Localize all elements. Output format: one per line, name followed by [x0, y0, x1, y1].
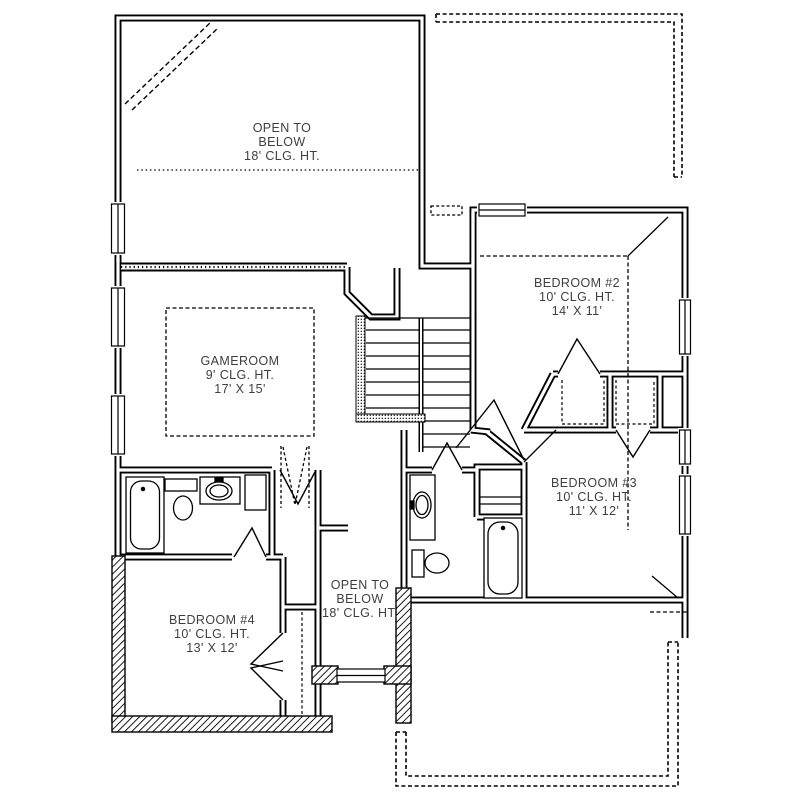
room-label-line: 9' CLG. HT. — [206, 368, 275, 382]
hatched-wall-right — [396, 588, 411, 723]
roof-line — [436, 22, 674, 177]
window — [110, 202, 126, 255]
room-label-line: 10' CLG. HT. — [556, 490, 632, 504]
room-label-line: BELOW — [336, 592, 383, 606]
floor-plan-page: OPEN TO BELOW 18' CLG. HT. GAMEROOM 9' C… — [0, 0, 800, 800]
room-label-line: 18' CLG. HT. — [244, 149, 320, 163]
bathtub-drain-icon — [141, 487, 144, 490]
stair-treads-right — [422, 330, 470, 447]
sink-basin-inner — [210, 485, 228, 497]
toilet-tank-icon — [412, 550, 424, 577]
roof-line — [396, 642, 678, 786]
linen-closet-shelves — [480, 497, 521, 504]
room-label-line: OPEN TO — [253, 121, 312, 135]
window — [678, 474, 692, 536]
room-label-line: 14' X 11' — [552, 304, 603, 318]
toilet-tank-icon — [165, 479, 197, 491]
window — [678, 428, 692, 466]
room-label-line: 17' X 15' — [214, 382, 265, 396]
faucet-icon — [410, 501, 414, 509]
room-label-bedroom-4: BEDROOM #4 10' CLG. HT. 13' X 12' — [169, 613, 255, 655]
faucet-icon — [215, 478, 223, 482]
room-label-gameroom: GAMEROOM 9' CLG. HT. 17' X 15' — [201, 354, 280, 396]
cabinet-icon — [245, 475, 266, 510]
floor-plan-drawing: OPEN TO BELOW 18' CLG. HT. GAMEROOM 9' C… — [0, 0, 800, 800]
bathtub-inner — [131, 481, 160, 549]
room-label-line: 10' CLG. HT. — [174, 627, 250, 641]
stair-railing — [356, 414, 425, 422]
sink-basin-inner — [416, 496, 428, 515]
toilet-bowl-icon — [425, 553, 449, 573]
hall-door — [280, 470, 316, 504]
window — [337, 669, 385, 682]
bathroom-left-fixtures — [126, 475, 266, 553]
room-label-line: BEDROOM #2 — [534, 276, 620, 290]
bathroom-right-fixtures — [410, 475, 522, 598]
bathtub-drain-icon — [501, 526, 504, 529]
room-label-line: 11' X 12' — [569, 504, 620, 518]
roof-outline-top-right — [436, 14, 682, 177]
french-doors — [251, 633, 283, 700]
roof-line — [406, 642, 668, 776]
bedroom2-tray-diagonal — [628, 217, 668, 256]
window — [110, 394, 126, 456]
roof-line — [436, 14, 682, 177]
ceiling-diagonal-dashed — [125, 22, 218, 110]
doors — [234, 339, 650, 700]
room-label-open-to-below-bottom: OPEN TO BELOW 18' CLG. HT. — [322, 578, 398, 620]
bath-door — [234, 528, 266, 557]
beam-marker-dashed — [431, 206, 462, 215]
wall — [404, 430, 685, 600]
room-label-bedroom-3: BEDROOM #3 10' CLG. HT. 11' X 12' — [551, 476, 637, 518]
stair-treads-left — [366, 330, 420, 408]
window — [477, 202, 527, 218]
hatched-wall-stub-right — [384, 666, 411, 684]
room-label-line: 18' CLG. HT. — [322, 606, 398, 620]
hatched-wall-left — [112, 556, 125, 722]
toilet-bowl-icon — [174, 496, 193, 520]
room-label-line: BEDROOM #3 — [551, 476, 637, 490]
window — [678, 298, 692, 356]
hatched-wall-stub-left — [312, 666, 338, 684]
room-label-line: OPEN TO — [331, 578, 390, 592]
closet-door — [616, 430, 650, 457]
wall-inner — [404, 430, 685, 600]
roof-outline-bottom-right — [396, 642, 678, 786]
room-label-line: 13' X 12' — [186, 641, 237, 655]
bathtub-inner — [488, 522, 518, 594]
room-label-open-to-below-top: OPEN TO BELOW 18' CLG. HT. — [244, 121, 320, 163]
bedroom2-door — [558, 339, 600, 374]
stair-railing — [356, 316, 365, 422]
room-label-line: BEDROOM #4 — [169, 613, 255, 627]
staircase — [356, 316, 471, 447]
window — [110, 286, 126, 348]
room-label-line: 10' CLG. HT. — [539, 290, 615, 304]
room-label-bedroom-2: BEDROOM #2 10' CLG. HT. 14' X 11' — [534, 276, 620, 318]
hatched-wall-bottom — [112, 716, 332, 732]
room-label-line: BELOW — [258, 135, 305, 149]
room-label-line: GAMEROOM — [201, 354, 280, 368]
